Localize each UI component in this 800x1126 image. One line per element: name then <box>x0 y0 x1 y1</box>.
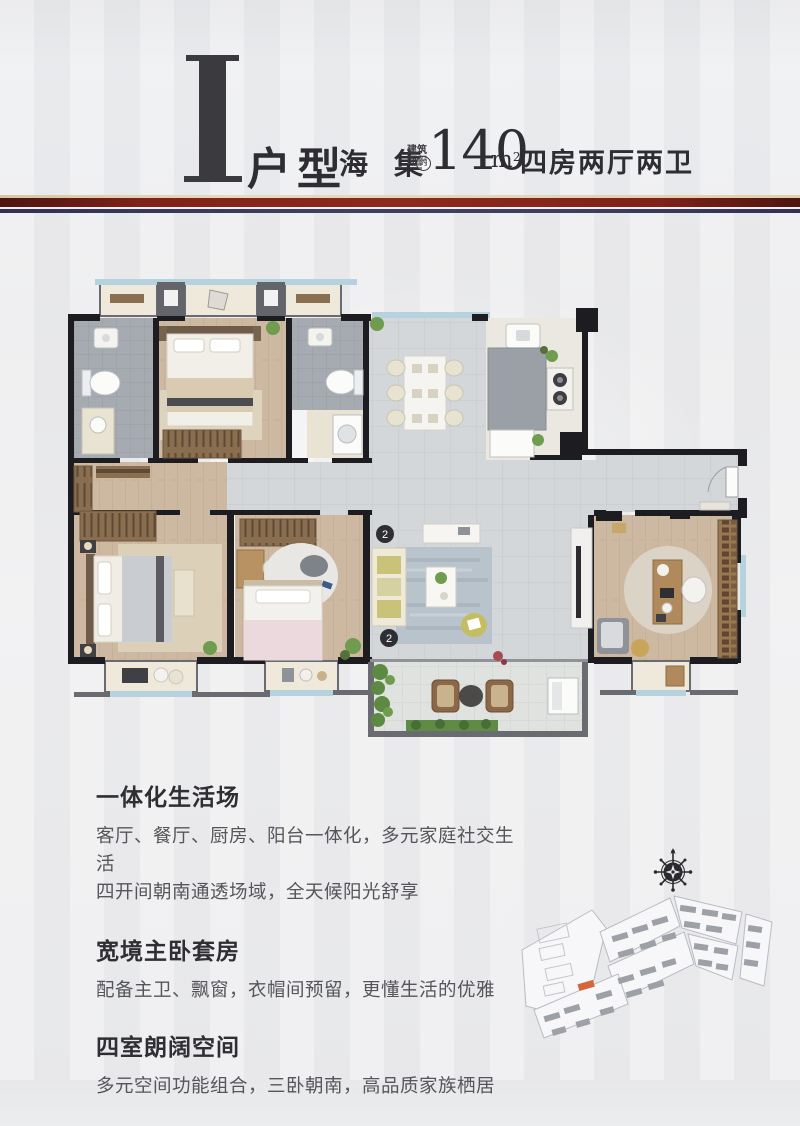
layout-spec: 四房两厅两卫 <box>520 141 694 180</box>
feature-title: 宽境主卧套房 <box>96 932 526 966</box>
site-map <box>500 882 778 1044</box>
feature-list: 一体化生活场 客厅、餐厅、厨房、阳台一体化，多元家庭社交生活 四开间朝南通透场域… <box>96 778 526 1126</box>
feature-line: 客厅、餐厅、厨房、阳台一体化，多元家庭社交生活 <box>96 822 526 878</box>
feature-line: 四开间朝南通透场域，全天候阳光舒享 <box>96 878 526 906</box>
feature-master-suite: 宽境主卧套房 配备主卫、飘窗，衣帽间预留，更懂生活的优雅 <box>96 932 526 1004</box>
floor-plan: 2 2 <box>60 270 750 750</box>
feature-title: 一体化生活场 <box>96 778 526 812</box>
area-unit: m2 <box>491 147 520 173</box>
feature-line: 配备主卫、飘窗，衣帽间预留，更懂生活的优雅 <box>96 976 526 1004</box>
divider-line <box>0 195 800 213</box>
plan-type-label: 户型 <box>247 133 347 197</box>
header: 户型 海 集 建筑 面积 约 140 m2 四房两厅两卫 <box>0 0 800 195</box>
hallway-floor <box>227 462 368 515</box>
tv-wall <box>571 528 592 628</box>
svg-text:2: 2 <box>386 633 392 645</box>
feature-title: 四室朗阔空间 <box>96 1028 526 1062</box>
feature-four-rooms: 四室朗阔空间 多元空间功能组合，三卧朝南，高品质家族栖居 <box>96 1028 526 1100</box>
svg-text:2: 2 <box>382 529 388 541</box>
feature-integrated-living: 一体化生活场 客厅、餐厅、厨房、阳台一体化，多元家庭社交生活 四开间朝南通透场域… <box>96 778 526 906</box>
plan-letter <box>184 55 242 182</box>
feature-line: 多元空间功能组合，三卧朝南，高品质家族栖居 <box>96 1072 526 1100</box>
